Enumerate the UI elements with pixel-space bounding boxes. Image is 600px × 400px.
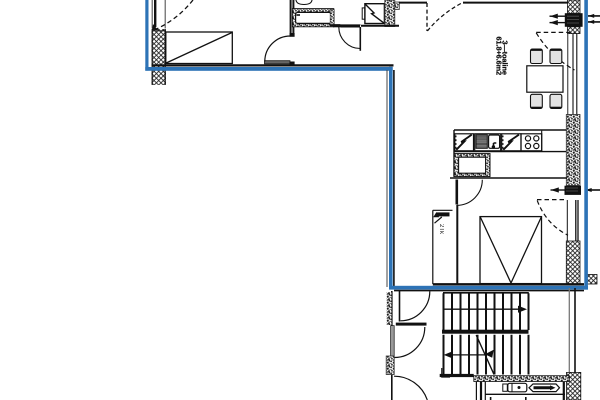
svg-text:2Tk: 2Tk xyxy=(438,224,444,235)
svg-text:61.8+6.6m2: 61.8+6.6m2 xyxy=(494,37,503,76)
